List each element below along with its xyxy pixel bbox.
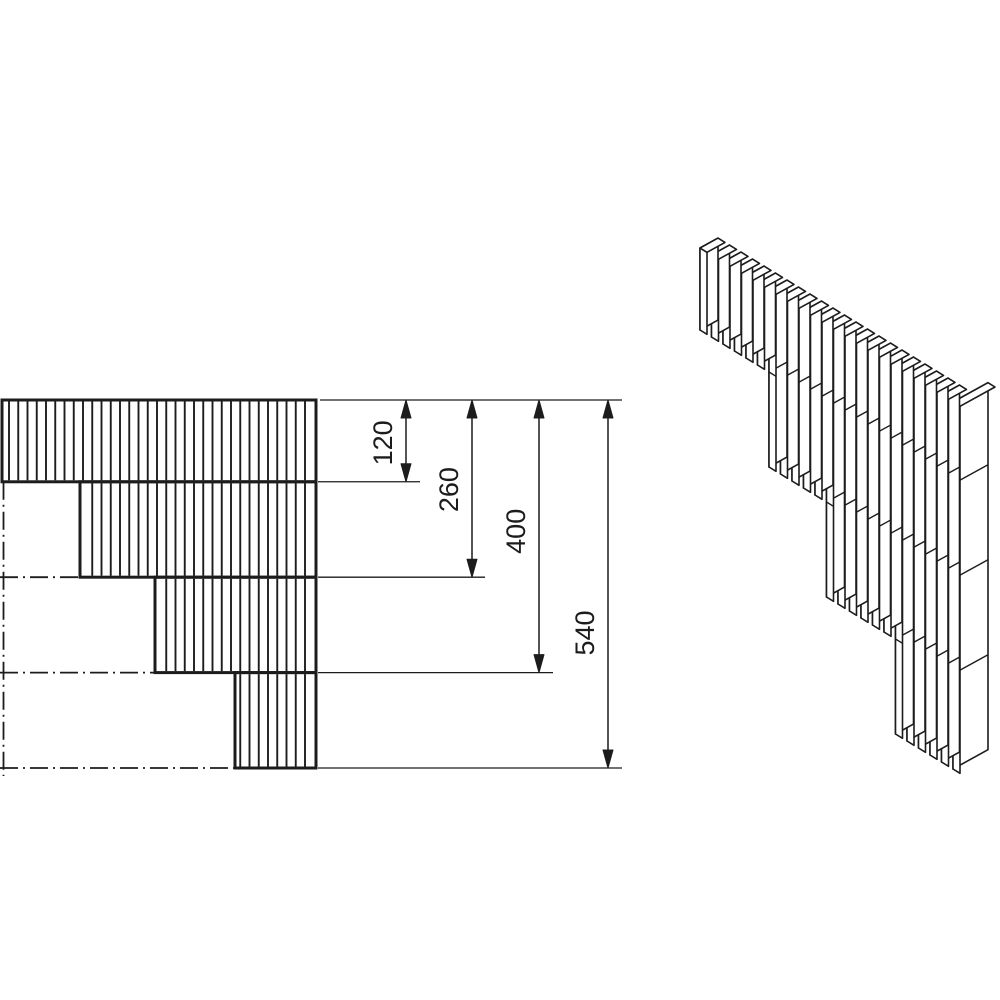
dimension-arrow-icon <box>603 750 613 768</box>
dimension-260: 260 <box>434 400 477 577</box>
dimension-arrow-icon <box>467 400 477 418</box>
hatched-band <box>2 400 316 482</box>
dimension-arrow-icon <box>534 655 544 673</box>
band-outline <box>235 673 316 768</box>
dimension-label: 540 <box>570 610 600 655</box>
dimension-label: 400 <box>501 509 531 554</box>
dimension-arrow-icon <box>603 400 613 418</box>
dimension-400: 400 <box>501 400 544 673</box>
dimension-arrow-icon <box>534 400 544 418</box>
dimension-arrow-icon <box>401 400 411 418</box>
dimension-120: 120 <box>368 400 411 482</box>
dimension-lines: 120260400540 <box>318 400 622 768</box>
dimension-arrow-icon <box>401 464 411 482</box>
front-elevation <box>0 400 316 776</box>
band-outline <box>80 482 316 577</box>
band-outline <box>155 577 316 672</box>
hatched-band <box>155 577 316 672</box>
dimension-540: 540 <box>570 400 613 768</box>
isometric-view <box>700 238 995 773</box>
dimension-label: 120 <box>368 420 398 465</box>
slat-front-face <box>700 248 707 334</box>
dimension-label: 260 <box>434 467 464 512</box>
drawing-canvas: 120260400540 <box>0 0 1000 1000</box>
dimension-arrow-icon <box>467 559 477 577</box>
hatched-band <box>80 482 316 577</box>
hatched-band <box>235 673 316 768</box>
